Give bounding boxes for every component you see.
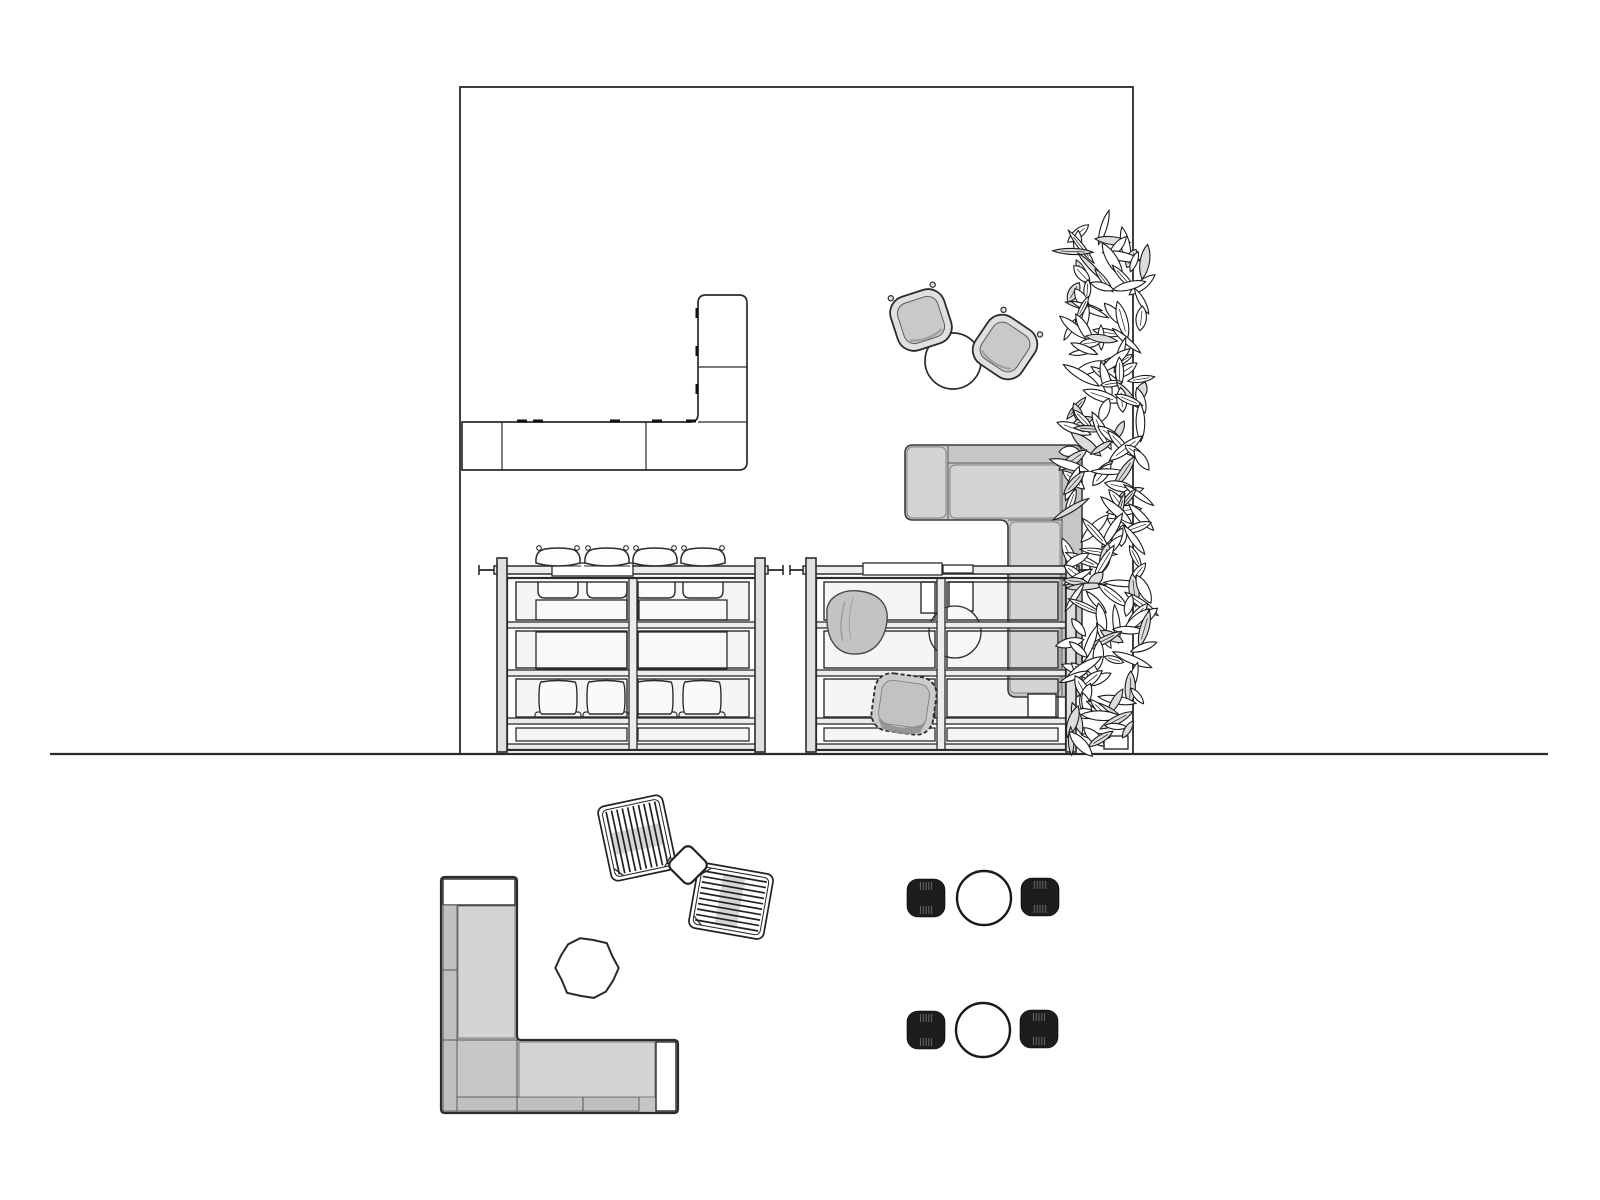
- bean-bag-outline: [827, 591, 887, 654]
- dining-round-table: [956, 1003, 1010, 1057]
- shelf-inner-board: [536, 632, 627, 669]
- woven-lounge-chair: [869, 671, 939, 738]
- stool-ear: [586, 546, 591, 551]
- stool-ear: [682, 546, 687, 551]
- sofa-end-table: [1028, 694, 1056, 718]
- stool-ear: [720, 546, 725, 551]
- slatted-lounge-chair: [597, 794, 677, 882]
- leaf-shape: [1137, 244, 1152, 280]
- shelf-divider: [937, 578, 945, 750]
- chair-body: [635, 681, 673, 715]
- sofa-backrest: [457, 1097, 639, 1111]
- stool-ear: [634, 546, 639, 551]
- dining-chair-black: [907, 879, 945, 917]
- sofa-end-cap: [656, 1042, 676, 1111]
- dining-set: [907, 871, 1059, 925]
- stool-seat-under: [587, 582, 627, 598]
- dining-chair-black: [1020, 1010, 1058, 1048]
- stool-cushion: [681, 548, 725, 566]
- shelf-bottom-tray: [638, 728, 749, 741]
- shelf-bottom-tray: [947, 728, 1058, 741]
- stool-cushion: [633, 548, 677, 566]
- shelf-inner-board: [536, 600, 627, 620]
- shelf-divider: [629, 578, 637, 750]
- sofa-end-cap: [443, 879, 515, 905]
- stool-seat-under: [635, 582, 675, 598]
- dining-chair-black: [1021, 878, 1059, 916]
- floor-plan-canvas: [0, 0, 1600, 1200]
- dining-chair-black: [907, 1011, 945, 1049]
- table-post: [497, 558, 507, 752]
- dining-round-table: [957, 871, 1011, 925]
- table-post: [806, 558, 816, 752]
- lounge-round-table: [555, 938, 618, 998]
- stool-ear: [537, 546, 542, 551]
- sofa-seat-cushion: [950, 465, 1060, 518]
- tabletop-item: [863, 563, 942, 575]
- stool-ear: [575, 546, 580, 551]
- stool-ear: [672, 546, 677, 551]
- dining-set: [907, 1003, 1058, 1057]
- floor-plan-page: [0, 0, 1600, 1200]
- stool-seat-under: [683, 582, 723, 598]
- leaf: [1137, 244, 1152, 280]
- shelf-chair: [679, 681, 725, 720]
- tabletop-item: [943, 565, 973, 573]
- table-post: [755, 558, 765, 752]
- shelf-chair: [583, 681, 629, 720]
- shelf-inner-board: [639, 600, 727, 620]
- stool-cushion: [536, 548, 580, 566]
- chair-body: [683, 681, 721, 715]
- lounge-area: [441, 794, 774, 1113]
- sofa-chaise-cushion: [907, 447, 946, 518]
- sofa-backrest: [443, 905, 457, 1111]
- woven-seat: [877, 679, 931, 729]
- sofa-seat-cushion: [519, 1042, 655, 1097]
- shelf-chair: [535, 681, 581, 720]
- shelf-bottom-tray: [516, 728, 627, 741]
- stool-cushion: [585, 548, 629, 566]
- chair-body: [539, 681, 577, 715]
- sofa-seat-cushion: [458, 906, 515, 1038]
- stool-ear: [624, 546, 629, 551]
- bean-bag-chair: [827, 591, 887, 654]
- dining-sets: [907, 871, 1059, 1057]
- stool-seat-under: [538, 582, 578, 598]
- chair-body: [587, 681, 625, 715]
- shelf-inner-board: [638, 632, 727, 669]
